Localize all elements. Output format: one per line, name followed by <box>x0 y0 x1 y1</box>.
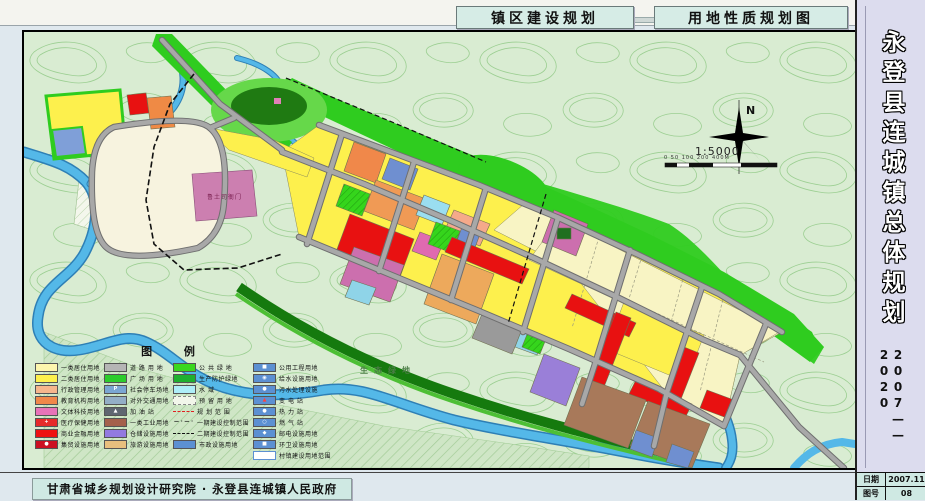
legend-item-label: 水 域 <box>199 385 214 394</box>
legend-swatch: ■ <box>253 363 276 372</box>
legend-swatch <box>104 418 127 427</box>
legend-swatch <box>104 396 127 405</box>
legend-column: 公 共 绿 地生产防护绿地水 域预 留 用 地规 划 范 围一期建设控制范围二期… <box>173 363 249 459</box>
legend-item: ●污水处理设施 <box>253 385 331 393</box>
legend-item: 仓储设施用地 <box>104 429 169 437</box>
legend-swatch <box>173 363 196 372</box>
legend-swatch <box>253 451 276 460</box>
legend-swatch: ◆ <box>253 429 276 438</box>
legend-swatch <box>104 440 127 449</box>
legend-item-label: 环卫设施用地 <box>279 440 318 449</box>
legend-item: ▲变 电 站 <box>253 396 331 404</box>
plan-title-vertical: 永登县连城镇总体规划 <box>874 30 908 330</box>
legend-item: 对外交通用地 <box>104 396 169 404</box>
legend-item: 旅游设施用地 <box>104 440 169 448</box>
legend-swatch <box>173 408 194 415</box>
legend-swatch <box>104 374 127 383</box>
legend-item: ●热 力 站 <box>253 407 331 415</box>
legend-item-label: 对外交通用地 <box>130 396 169 405</box>
legend-item: ▲加 油 站 <box>104 407 169 415</box>
legend-swatch <box>35 429 58 438</box>
legend-swatch <box>173 419 194 426</box>
legend-item-label: 道 路 用 地 <box>130 363 163 372</box>
legend-swatch: ● <box>253 407 276 416</box>
legend-swatch <box>173 374 196 383</box>
legend-item: ◆邮电设施用地 <box>253 429 331 437</box>
legend-item-label: 燃 气 站 <box>279 418 303 427</box>
legend-item-label: 二期建设控制范围 <box>197 429 249 438</box>
legend-swatch: ▲ <box>104 407 127 416</box>
legend-column: 道 路 用 地广 场 用 地P社会停车场地对外交通用地▲加 油 站一类工业用地仓… <box>104 363 169 459</box>
title-block-table: 日期2007.11图号08 <box>857 472 925 500</box>
legend-item: ■公用工程用地 <box>253 363 331 371</box>
legend-item-label: 仓储设施用地 <box>130 429 169 438</box>
legend-item-label: 二类居住用地 <box>61 374 100 383</box>
legend-swatch: ◉ <box>253 374 276 383</box>
legend-item: 教育机构用地 <box>35 396 100 404</box>
legend-swatch <box>35 374 58 383</box>
credit-text: 甘肃省城乡规划设计研究院 · 永登县连城镇人民政府 <box>47 481 337 497</box>
legend-item-label: 教育机构用地 <box>61 396 100 405</box>
legend-item: P社会停车场地 <box>104 385 169 393</box>
legend-item: 商业金融用地 <box>35 429 100 437</box>
legend-item: ○燃 气 站 <box>253 418 331 426</box>
legend-swatch <box>173 430 194 437</box>
legend-item-label: 一期建设控制范围 <box>197 418 249 427</box>
legend-swatch <box>35 407 58 416</box>
legend-swatch: P <box>104 385 127 394</box>
legend-item: 广 场 用 地 <box>104 374 169 382</box>
legend-item-label: 旅游设施用地 <box>130 440 169 449</box>
title-block-row: 日期2007.11 <box>857 473 925 487</box>
legend-item-label: 商业金融用地 <box>61 429 100 438</box>
sheet-title-left-text: 镇区建设规划 <box>491 8 599 28</box>
legend-item-label: 医疗保健用地 <box>61 418 100 427</box>
legend-swatch <box>173 385 196 394</box>
legend-title: 图 例 <box>35 343 305 359</box>
legend-item-label: 变 电 站 <box>279 396 303 405</box>
sheet-title-left: 镇区建设规划 <box>456 6 634 29</box>
legend-item-label: 行政管理用地 <box>61 385 100 394</box>
legend-item: 二期建设控制范围 <box>173 429 249 437</box>
legend-swatch: + <box>35 418 58 427</box>
scale-bar <box>665 163 777 167</box>
legend-swatch <box>104 363 127 372</box>
legend-swatch <box>35 385 58 394</box>
legend-item-label: 污水处理设施 <box>279 385 318 394</box>
legend-swatch: ○ <box>253 418 276 427</box>
legend-item: ●集贸设施用地 <box>35 440 100 448</box>
legend-item-label: 公 共 绿 地 <box>199 363 232 372</box>
title-block-label: 日期 <box>857 473 886 486</box>
legend-item: 市政设施用地 <box>173 440 249 448</box>
legend-swatch: ■ <box>253 440 276 449</box>
legend-item-label: 加 油 站 <box>130 407 154 416</box>
legend-item-label: 集贸设施用地 <box>61 440 100 449</box>
legend-item: 行政管理用地 <box>35 385 100 393</box>
sidebar: 永登县连城镇总体规划 2007——2020 日期2007.11图号08 <box>855 0 925 500</box>
legend-item-label: 一类居住用地 <box>61 363 100 372</box>
legend-item-label: 村镇建设用地范围 <box>279 451 331 460</box>
title-block-value: 2007.11 <box>886 473 925 486</box>
legend-swatch: ▲ <box>253 396 276 405</box>
legend-item-label: 邮电设施用地 <box>279 429 318 438</box>
legend-item: 生产防护绿地 <box>173 374 249 382</box>
sheet-title-right-text: 用地性质规划图 <box>688 8 814 28</box>
title-block-row: 图号08 <box>857 487 925 500</box>
legend-item-label: 市政设施用地 <box>199 440 238 449</box>
legend-columns: 一类居住用地二类居住用地行政管理用地教育机构用地文体科技用地+医疗保健用地商业金… <box>35 363 305 459</box>
legend-item: ■环卫设施用地 <box>253 440 331 448</box>
legend-item-label: 规 划 范 围 <box>197 407 230 416</box>
credit-box: 甘肃省城乡规划设计研究院 · 永登县连城镇人民政府 <box>32 478 352 500</box>
legend-item-label: 社会停车场地 <box>130 385 169 394</box>
legend-item-label: 文体科技用地 <box>61 407 100 416</box>
legend-item: 二类居住用地 <box>35 374 100 382</box>
legend-item-label: 给水设施用地 <box>279 374 318 383</box>
sheet-title-right: 用地性质规划图 <box>654 6 848 29</box>
legend-swatch <box>173 440 196 449</box>
legend-item: 一类居住用地 <box>35 363 100 371</box>
legend-item: 道 路 用 地 <box>104 363 169 371</box>
legend-swatch: ● <box>35 440 58 449</box>
legend-item: 文体科技用地 <box>35 407 100 415</box>
legend-item-label: 公用工程用地 <box>279 363 318 372</box>
legend-item: 一期建设控制范围 <box>173 418 249 426</box>
legend-item: 公 共 绿 地 <box>173 363 249 371</box>
legend-swatch <box>35 363 58 372</box>
title-block-value: 08 <box>886 487 925 500</box>
legend-item: +医疗保健用地 <box>35 418 100 426</box>
legend-swatch: ● <box>253 385 276 394</box>
legend-item-label: 广 场 用 地 <box>130 374 163 383</box>
legend-swatch <box>35 396 58 405</box>
legend-item-label: 热 力 站 <box>279 407 303 416</box>
legend-item: 村镇建设用地范围 <box>253 451 331 459</box>
legend-item-label: 一类工业用地 <box>130 418 169 427</box>
legend-item-label: 生产防护绿地 <box>199 374 238 383</box>
legend-swatch <box>104 429 127 438</box>
footer-strip: 甘肃省城乡规划设计研究院 · 永登县连城镇人民政府 <box>0 472 855 501</box>
legend-column: 一类居住用地二类居住用地行政管理用地教育机构用地文体科技用地+医疗保健用地商业金… <box>35 363 100 459</box>
title-block-label: 图号 <box>857 487 886 500</box>
legend-column: ■公用工程用地◉给水设施用地●污水处理设施▲变 电 站●热 力 站○燃 气 站◆… <box>253 363 331 459</box>
legend-item: 预 留 用 地 <box>173 396 249 404</box>
legend-item: 水 域 <box>173 385 249 393</box>
legend-item: 规 划 范 围 <box>173 407 249 415</box>
legend-item: ◉给水设施用地 <box>253 374 331 382</box>
legend-swatch <box>173 396 196 405</box>
legend: 图 例 一类居住用地二类居住用地行政管理用地教育机构用地文体科技用地+医疗保健用… <box>35 343 305 459</box>
legend-item: 一类工业用地 <box>104 418 169 426</box>
planning-sheet: 镇区建设规划 用地性质规划图 <box>0 0 925 500</box>
planning-map: 鲁土司衙门 生态绿地 1:5000 N 0 50 100 200 400M 图 … <box>22 30 857 470</box>
legend-item-label: 预 留 用 地 <box>199 396 232 405</box>
